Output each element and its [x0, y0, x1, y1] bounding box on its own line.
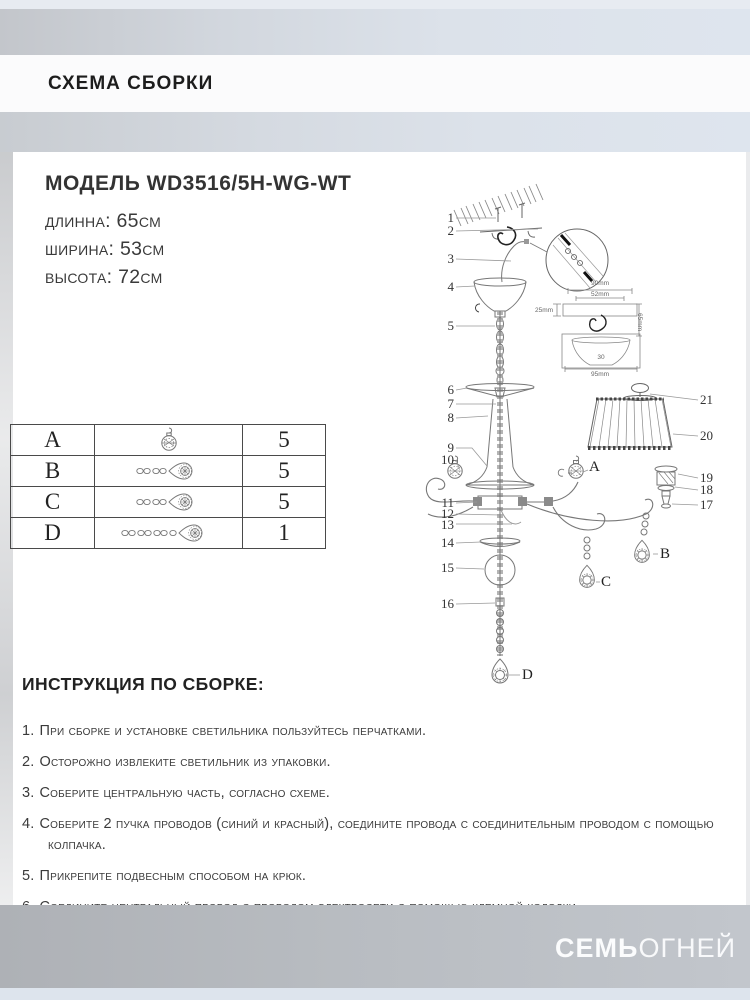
- crystal-drop-short-chain-icon: [128, 489, 210, 515]
- callout-20: 20: [700, 429, 724, 442]
- instruction-step: 5.Прикрепите подвесным способом на крюк.: [22, 866, 738, 887]
- table-row: C 5: [11, 487, 326, 518]
- part-qty: 5: [243, 425, 326, 456]
- callout-14: 14: [434, 536, 454, 549]
- table-row: A 5: [11, 425, 326, 456]
- table-row: D 1: [11, 518, 326, 549]
- callout-8: 8: [434, 411, 454, 424]
- callout-10: 10: [434, 453, 454, 466]
- instruction-step: 1.При сборке и установке светильника пол…: [22, 721, 738, 742]
- part-letter: A: [11, 425, 95, 456]
- instruction-step: 2.Осторожно извлеките светильник из упак…: [22, 752, 738, 773]
- dim-inner: 30: [591, 354, 611, 361]
- part-qty: 1: [243, 518, 326, 549]
- assembly-instructions: ИНСТРУКЦИЯ ПО СБОРКЕ: 1.При сборке и уст…: [22, 674, 738, 928]
- footer-band: СЕМЬОГНЕЙ: [0, 905, 750, 988]
- part-letter: D: [11, 518, 95, 549]
- pendant-label-c: C: [601, 575, 611, 589]
- dim-bottom: 95mm: [570, 371, 630, 378]
- crystal-drop-short-chain-icon: [128, 458, 210, 484]
- pendant-label-a: A: [589, 460, 600, 474]
- assembly-diagram: 1 2 3 4 5 6 7 8 9 10 11 12 13 14 15 16 2…: [410, 170, 750, 700]
- page-title: СХЕМА СБОРКИ: [48, 55, 213, 112]
- part-qty: 5: [243, 487, 326, 518]
- callout-17: 17: [700, 498, 724, 511]
- assembly-manual-page: СХЕМА СБОРКИ МОДЕЛЬ WD3516/5H-WG-WT длин…: [0, 0, 750, 1000]
- callout-13: 13: [434, 518, 454, 531]
- top-edge-strip: [0, 0, 750, 9]
- table-row: B 5: [11, 456, 326, 487]
- part-letter: B: [11, 456, 95, 487]
- brand-logo-bold: СЕМЬ: [555, 933, 638, 963]
- footer-bottom-strip: [0, 988, 750, 1000]
- dim-top-inner: 52mm: [570, 291, 630, 298]
- parts-table: A 5 B: [10, 424, 326, 549]
- callout-18: 18: [700, 483, 724, 496]
- header-band: СХЕМА СБОРКИ: [0, 55, 750, 112]
- callout-21: 21: [700, 393, 724, 406]
- model-number: МОДЕЛЬ WD3516/5H-WG-WT: [45, 172, 351, 196]
- callout-7: 7: [434, 397, 454, 410]
- model-info: МОДЕЛЬ WD3516/5H-WG-WT длинна: 65см шири…: [45, 172, 351, 291]
- callout-3: 3: [434, 252, 454, 265]
- part-letter: C: [11, 487, 95, 518]
- instructions-title: ИНСТРУКЦИЯ ПО СБОРКЕ:: [22, 674, 738, 695]
- callout-6: 6: [434, 383, 454, 396]
- dim-right: 65mm: [636, 313, 643, 331]
- callout-16: 16: [434, 597, 454, 610]
- callout-5: 5: [434, 319, 454, 332]
- model-width: ширина: 53см: [45, 235, 351, 263]
- part-qty: 5: [243, 456, 326, 487]
- crystal-drop-long-chain-icon: [117, 520, 221, 546]
- crystal-ball-pendant-icon: [154, 426, 184, 454]
- brand-logo: СЕМЬОГНЕЙ: [555, 933, 736, 964]
- dim-top-outer: 90mm: [570, 280, 630, 287]
- brand-logo-light: ОГНЕЙ: [638, 933, 736, 963]
- callout-2: 2: [434, 224, 454, 237]
- chandelier-diagram-drawing: [410, 170, 750, 700]
- instruction-step: 4.Соберите 2 пучка проводов (синий и кра…: [22, 814, 738, 856]
- callout-15: 15: [434, 561, 454, 574]
- model-length: длинна: 65см: [45, 207, 351, 235]
- callout-4: 4: [434, 280, 454, 293]
- instruction-step: 3.Соберите центральную часть, согласно с…: [22, 783, 738, 804]
- dim-left: 25mm: [535, 307, 553, 314]
- model-height: высота: 72см: [45, 263, 351, 291]
- pendant-label-b: B: [660, 547, 670, 561]
- mid-decorative-band: [0, 112, 750, 152]
